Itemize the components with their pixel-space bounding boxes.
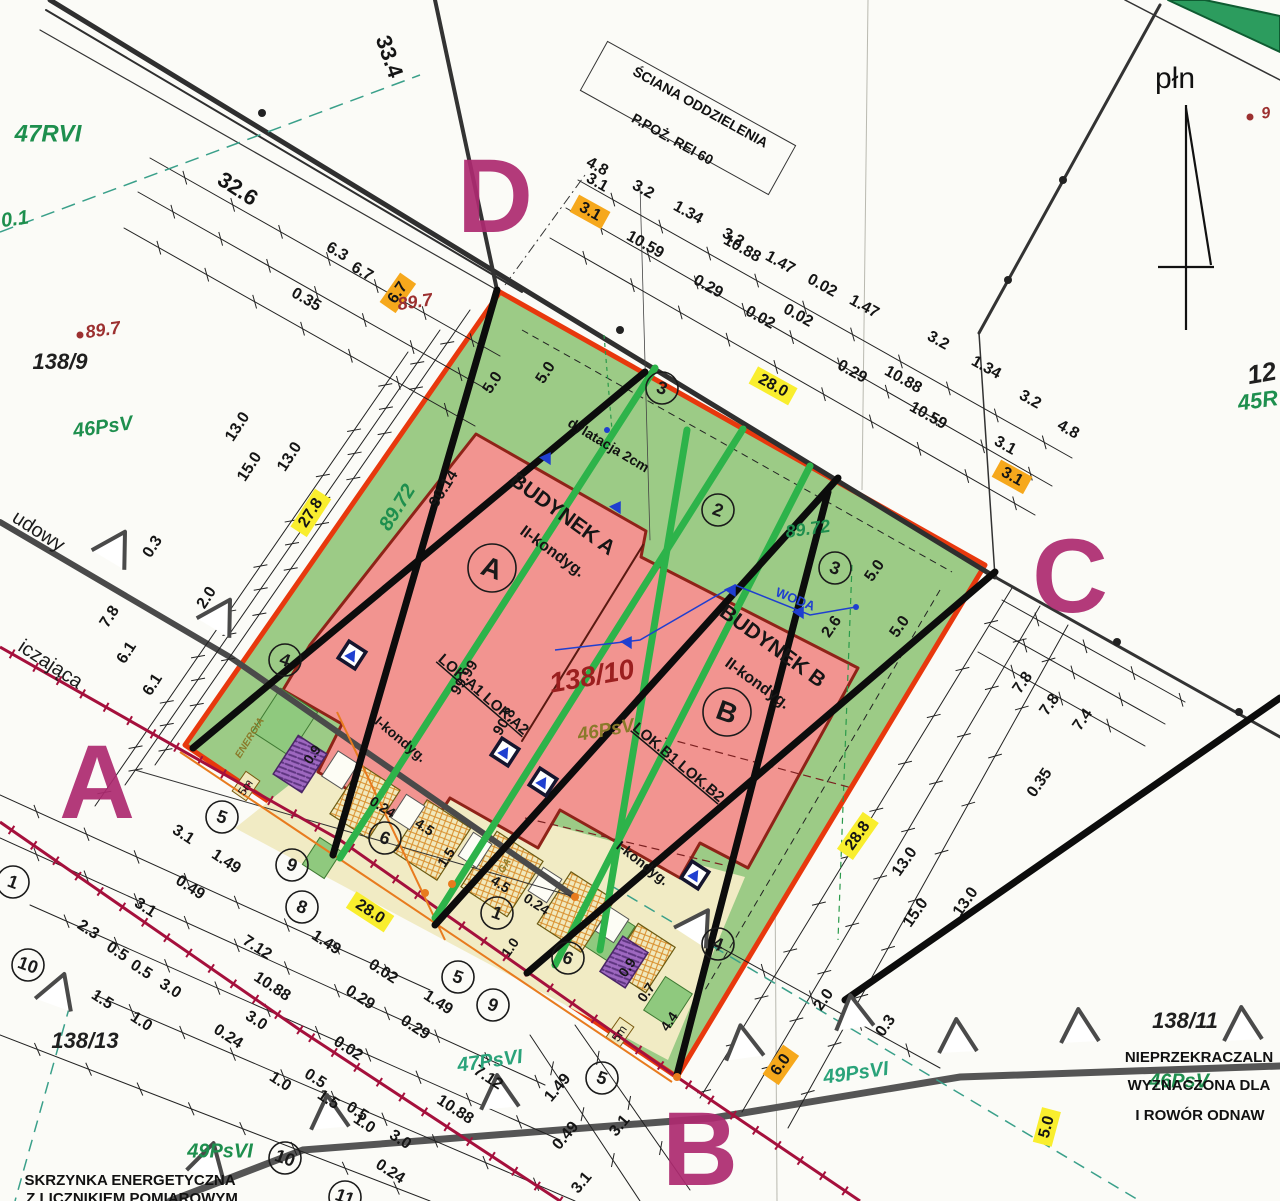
point-marker	[1113, 638, 1121, 646]
parcel-138-11: 138/11	[1152, 1008, 1218, 1033]
corner-letter-c: C	[1032, 518, 1108, 635]
point-marker	[673, 1073, 681, 1081]
north-label: płn	[1155, 62, 1195, 95]
note-energy-box-1: SKRZYNKA ENERGETYCZNA	[24, 1172, 235, 1189]
note-limit-3: I ROWÓR ODNAW	[1135, 1106, 1265, 1124]
point-marker	[853, 604, 859, 610]
point-marker	[616, 326, 624, 334]
site-plan-svg: 332445551199866101011AB4.83.21.343.21.47…	[0, 0, 1280, 1201]
point-marker	[448, 880, 456, 888]
map-graphics: 332445551199866101011AB4.83.21.343.21.47…	[0, 0, 1280, 1201]
land-use-49psvi-left: 49PsVI	[186, 1140, 253, 1162]
corner-letter-a: A	[59, 724, 135, 841]
point-marker	[77, 332, 84, 339]
point-marker	[1247, 114, 1254, 121]
note-limit-2: WYZNACZONA DLA	[1128, 1077, 1271, 1094]
point-marker	[571, 893, 579, 901]
site-plan-map: Projekt zagospodarowania terenu – działk…	[0, 0, 1280, 1201]
land-use-49psvi-left: 49PsVI	[186, 1140, 253, 1162]
land-use-47rvi: 47RVI	[14, 120, 83, 147]
parcel-138-9: 138/9	[32, 349, 88, 374]
dim-label-text: 0.1	[0, 206, 30, 232]
parcel-138-11: 138/11	[1152, 1008, 1218, 1033]
dim-label: 0.1	[0, 206, 30, 232]
land-use-47rvi: 47RVI	[14, 120, 83, 147]
parcel-138-13: 138/13	[51, 1028, 118, 1053]
note-limit-2: WYZNACZONA DLA	[1128, 1077, 1271, 1094]
note-limit-1: NIEPRZEKRACZALN	[1125, 1049, 1273, 1066]
note-limit-1: NIEPRZEKRACZALN	[1125, 1049, 1273, 1066]
point-marker	[604, 427, 610, 433]
point-marker	[1059, 176, 1067, 184]
point-marker	[258, 109, 266, 117]
note-limit-3: I ROWÓR ODNAW	[1135, 1106, 1265, 1124]
corner-letter-d: D	[457, 138, 533, 255]
point-marker	[421, 889, 429, 897]
point-marker	[1235, 708, 1243, 716]
note-energy-box-2: Z LICZNIKIEM POMIAROWYM	[26, 1190, 238, 1201]
corner-letter-b: B	[662, 1091, 738, 1201]
parcel-138-9: 138/9	[32, 349, 88, 374]
parcel-138-13: 138/13	[51, 1028, 118, 1053]
note-energy-box-2: Z LICZNIKIEM POMIAROWYM	[26, 1190, 238, 1201]
note-energy-box-1: SKRZYNKA ENERGETYCZNA	[24, 1172, 235, 1189]
point-marker	[1004, 276, 1012, 284]
